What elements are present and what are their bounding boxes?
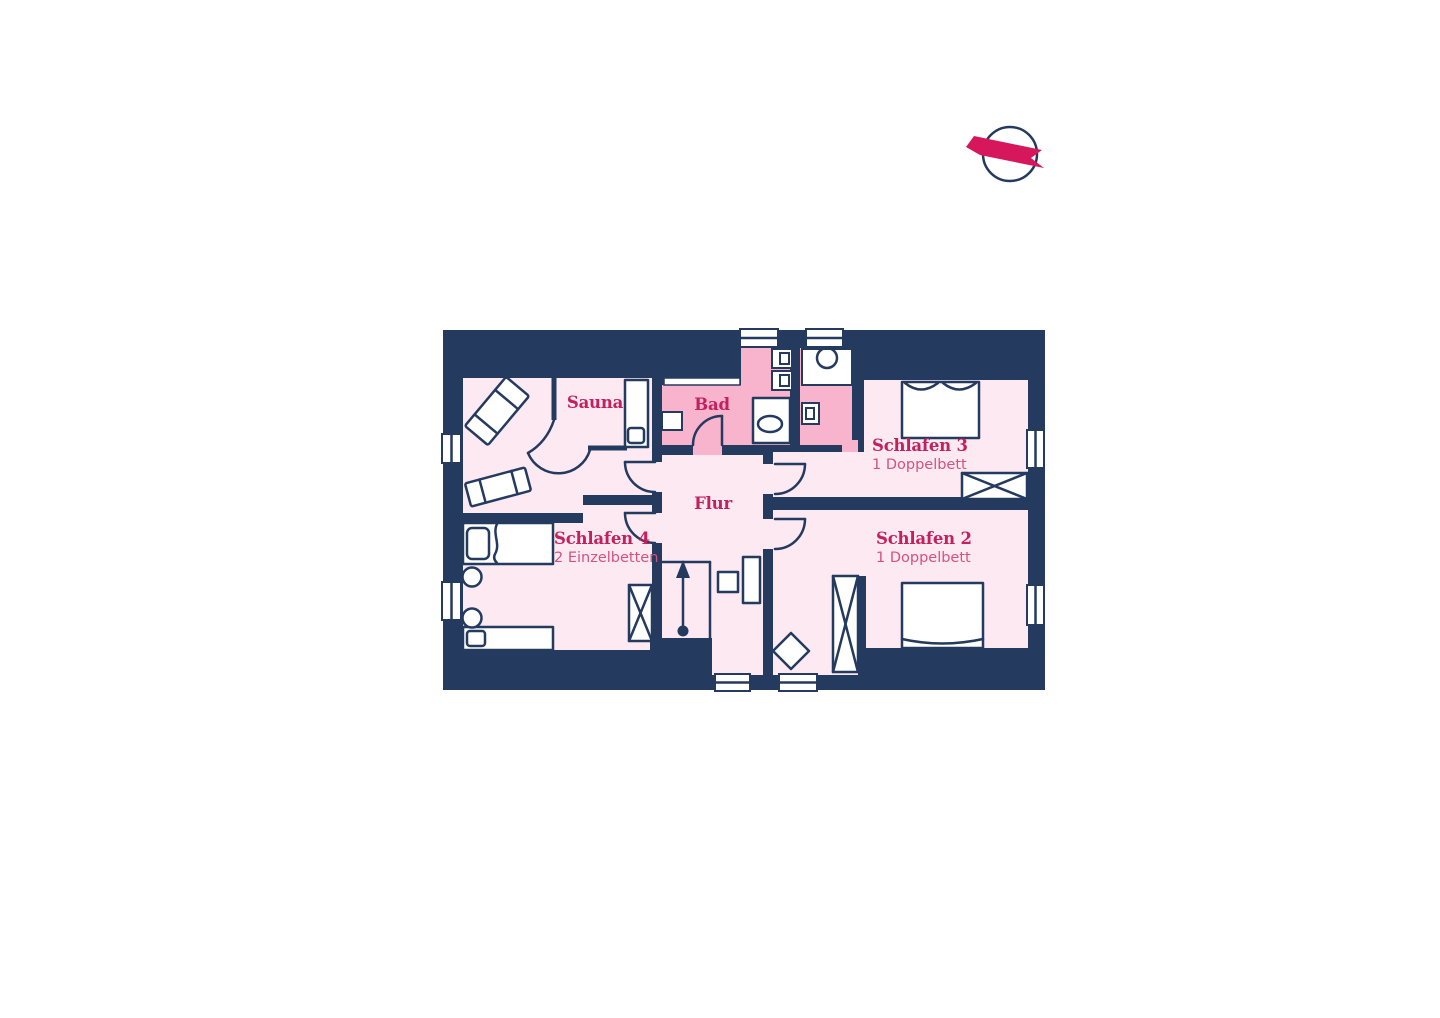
door-opening-schlafen2 [763, 519, 773, 549]
door-opening-schlafen3 [763, 464, 773, 494]
room-label-schlafen-2: Schlafen 2 1 Doppelbett [876, 530, 972, 568]
room-title: Schlafen 2 [876, 530, 972, 548]
bed-pillow [467, 631, 485, 646]
bed-pillow [467, 528, 489, 559]
window-icon [1027, 585, 1044, 625]
double-bed-icon [902, 382, 979, 438]
hall-cabinet [718, 572, 738, 592]
room-subtitle: 1 Doppelbett [872, 457, 968, 474]
window-icon [442, 434, 461, 463]
door-opening-sauna [652, 462, 662, 492]
room-label-sauna: Sauna [567, 393, 623, 412]
side-table-icon [463, 568, 482, 587]
window-icon [442, 582, 461, 620]
room-label-bad: Bad [694, 395, 730, 414]
window-icon [740, 329, 778, 347]
sauna-stove-icon [628, 428, 644, 443]
room-title: Schlafen 4 [554, 530, 658, 548]
room-subtitle: 1 Doppelbett [876, 550, 972, 567]
radiator-icon [662, 412, 682, 430]
bath-shelf [664, 378, 740, 385]
double-bed-icon [902, 583, 983, 648]
room-label-schlafen-3: Schlafen 3 1 Doppelbett [872, 437, 968, 475]
door-opening-bad [693, 445, 722, 455]
wardrobe-icon [833, 576, 858, 672]
window-icon [1027, 430, 1044, 468]
window-icon [715, 674, 750, 691]
hall-cabinet [743, 557, 760, 603]
window-icon [806, 329, 843, 347]
room-subtitle: 2 Einzelbetten [554, 550, 658, 567]
room-label-schlafen-4: Schlafen 4 2 Einzelbetten [554, 530, 658, 568]
window-icon [779, 674, 817, 691]
compass-icon [966, 127, 1044, 181]
wc-detail [780, 375, 789, 386]
room-label-flur: Flur [694, 494, 732, 513]
wc-detail [780, 353, 789, 364]
side-table-icon [463, 609, 482, 628]
wardrobe-icon [629, 585, 652, 641]
floorplan-page: Sauna Bad Flur Schlafen 3 1 Doppelbett S… [0, 0, 1440, 1018]
room-title: Schlafen 3 [872, 437, 968, 455]
toilet-detail [806, 408, 814, 419]
staircase-void [650, 638, 712, 677]
wardrobe-icon [962, 473, 1027, 499]
